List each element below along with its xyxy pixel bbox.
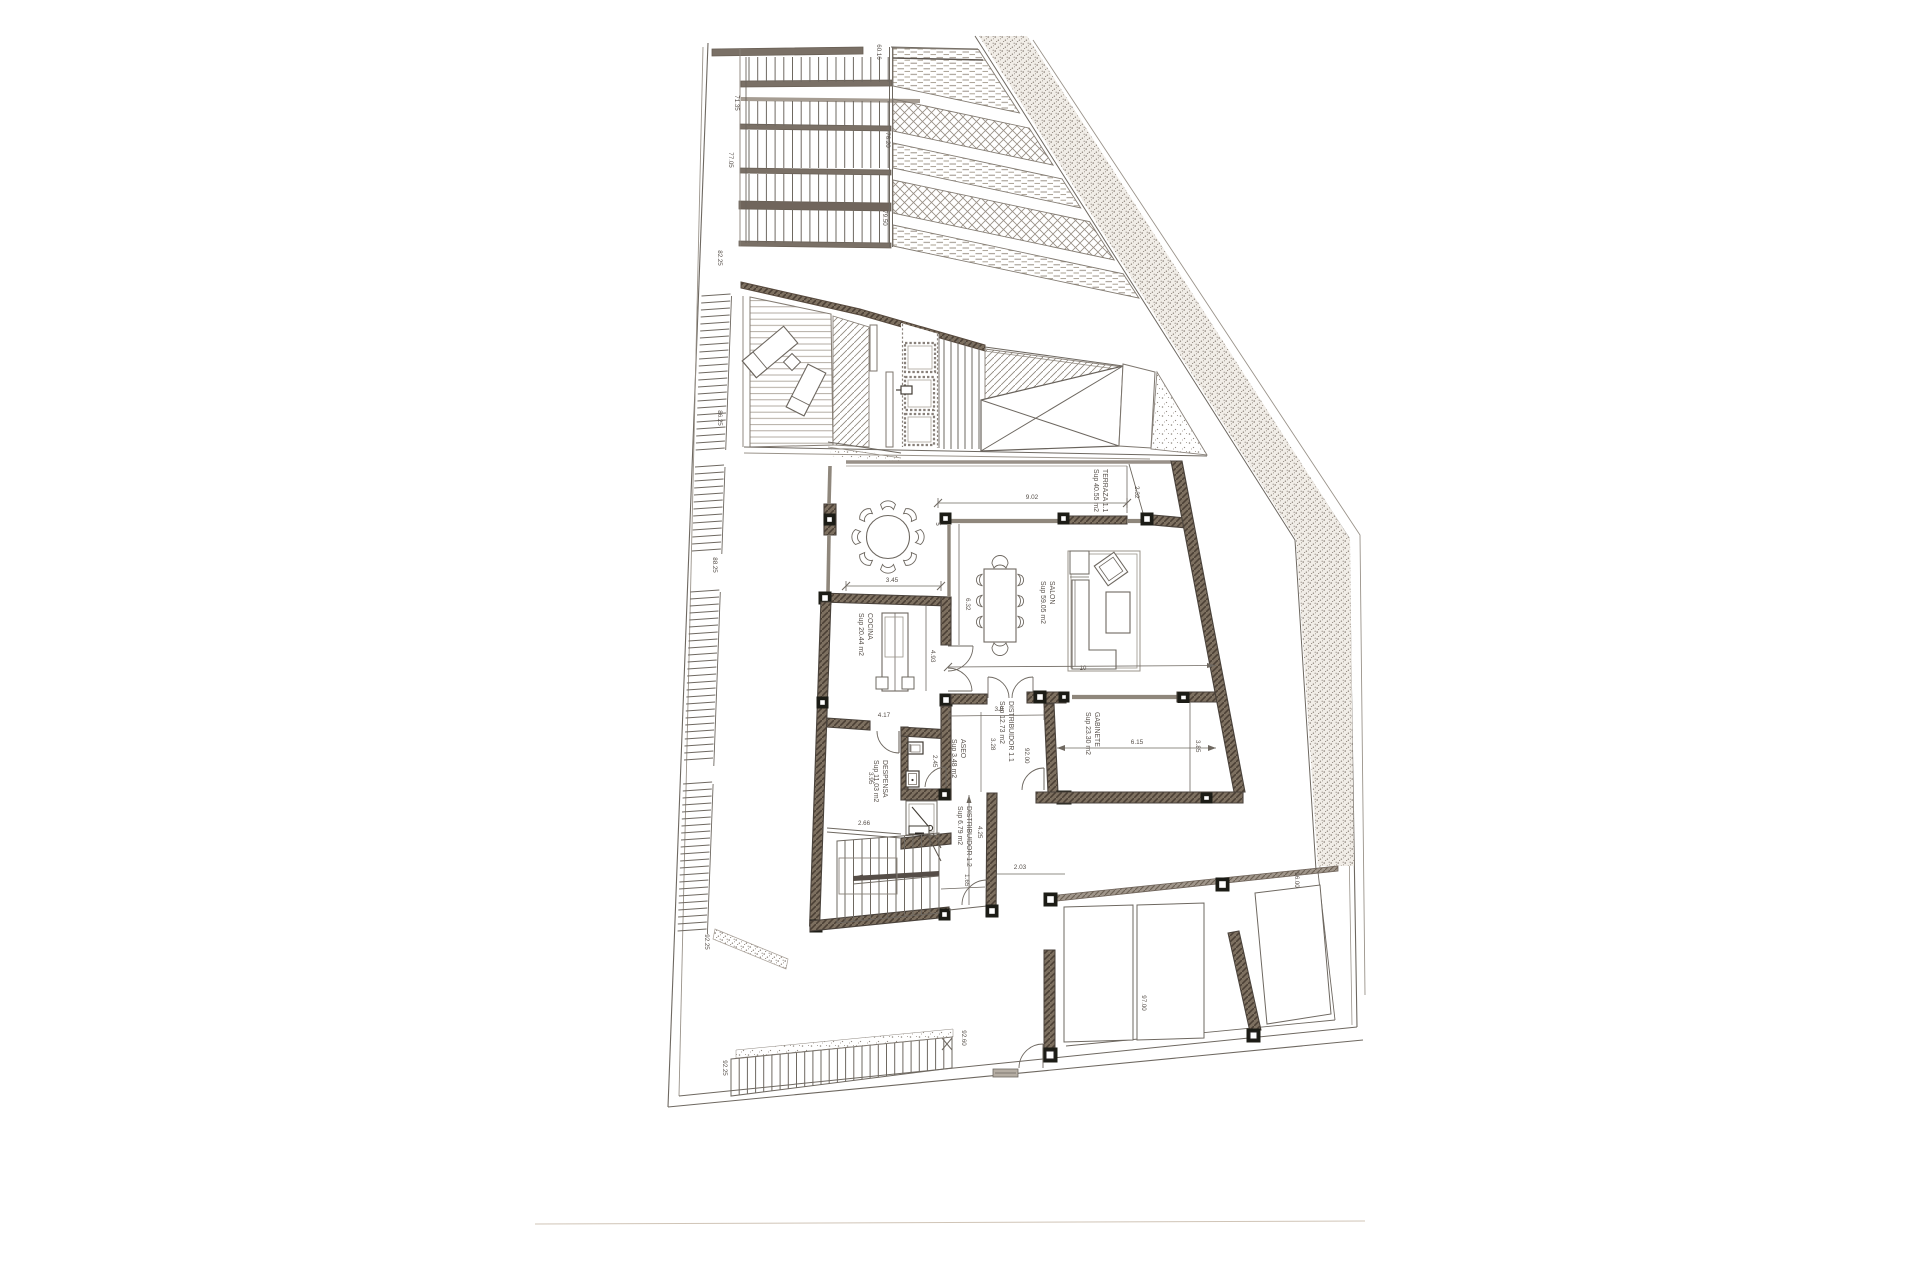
svg-text:DISTRIBUIDOR 1.2: DISTRIBUIDOR 1.2: [965, 806, 972, 867]
svg-text:Sup 3.48 m2: Sup 3.48 m2: [950, 739, 957, 778]
svg-text:COCINA: COCINA: [866, 613, 873, 640]
svg-text:3.85: 3.85: [1194, 740, 1201, 753]
svg-text:3.8: 3.8: [995, 706, 1004, 713]
svg-text:ASEO: ASEO: [959, 739, 966, 759]
svg-text:4.25: 4.25: [976, 826, 983, 839]
svg-text:TERRAZA 1.1: TERRAZA 1.1: [1101, 469, 1108, 512]
svg-text:Sup 23.30 m2: Sup 23.30 m2: [1084, 712, 1091, 755]
svg-text:Sup 40.55 m2: Sup 40.55 m2: [1092, 469, 1099, 512]
svg-text:92.25: 92.25: [721, 1060, 728, 1076]
svg-text:92.60: 92.60: [960, 1030, 967, 1046]
svg-text:4.93: 4.93: [929, 650, 936, 663]
svg-text:76.20: 76.20: [884, 132, 891, 148]
svg-text:DISTRIBUIDOR 1.1: DISTRIBUIDOR 1.1: [1007, 701, 1014, 762]
svg-text:71.35: 71.35: [733, 95, 740, 111]
svg-text:82.25: 82.25: [716, 250, 723, 266]
svg-text:2.45: 2.45: [931, 755, 938, 768]
svg-text:96.00: 96.00: [1293, 872, 1300, 888]
svg-text:3.28: 3.28: [989, 738, 996, 751]
svg-text:2.03: 2.03: [1014, 864, 1027, 871]
svg-text:Sup 6.79 m2: Sup 6.79 m2: [956, 806, 963, 845]
svg-text:2.66: 2.66: [858, 820, 871, 827]
svg-text:2.32: 2.32: [1133, 486, 1140, 499]
svg-text:3.95: 3.95: [867, 772, 874, 785]
svg-text:6.32: 6.32: [964, 598, 971, 611]
svg-text:77.05: 77.05: [727, 152, 734, 168]
svg-text:92.25: 92.25: [703, 934, 710, 950]
svg-text:Sup 20.44 m2: Sup 20.44 m2: [857, 613, 864, 656]
svg-text:9.02: 9.02: [1026, 494, 1039, 501]
svg-text:10: 10: [1080, 666, 1087, 672]
svg-text:97.00: 97.00: [1140, 995, 1147, 1011]
svg-text:3.45: 3.45: [886, 577, 899, 584]
svg-text:92.00: 92.00: [1023, 748, 1030, 764]
svg-text:GABINETE: GABINETE: [1093, 712, 1100, 747]
svg-text:88.25: 88.25: [711, 557, 718, 573]
svg-text:6.15: 6.15: [1131, 739, 1144, 746]
svg-text:DESPENSA: DESPENSA: [881, 760, 888, 798]
svg-text:86.25: 86.25: [716, 410, 723, 426]
svg-text:60.16: 60.16: [875, 44, 882, 60]
svg-text:Sup 59.05 m2: Sup 59.05 m2: [1039, 581, 1046, 624]
svg-text:79.50: 79.50: [881, 210, 888, 226]
svg-text:1.65: 1.65: [963, 874, 970, 887]
svg-text:SALON: SALON: [1048, 581, 1055, 604]
svg-text:4.17: 4.17: [878, 712, 891, 719]
